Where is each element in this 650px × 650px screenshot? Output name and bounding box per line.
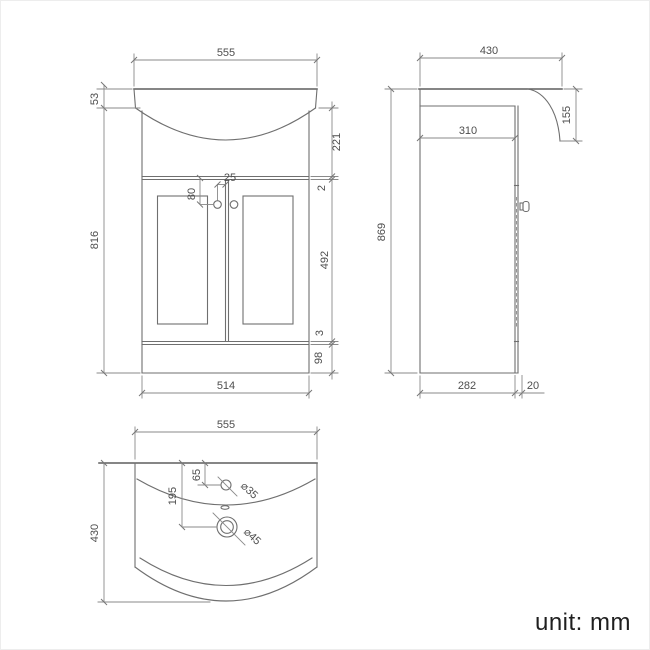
dim-front-plinth-height: 98 (313, 352, 325, 364)
dim-top-basin-width: 555 (217, 419, 235, 431)
top-dimensions: 555 430 65 195 (89, 419, 317, 602)
top-basin-outline (99, 463, 317, 601)
top-holes: ⌀35 ⌀45 (213, 477, 263, 548)
vanity-unit-drawing: 555 53 816 221 2 492 3 (1, 1, 650, 650)
dim-tap-hole-diameter: ⌀35 (238, 480, 260, 502)
technical-drawing-canvas: 555 53 816 221 2 492 3 (0, 0, 650, 650)
dim-front-basin-width: 555 (217, 47, 235, 59)
right-door-panel (243, 196, 293, 324)
overflow-hole (221, 506, 229, 510)
bowl-back-curve (137, 479, 315, 505)
dim-side-overall-height: 869 (376, 223, 388, 241)
side-door-knob (520, 202, 529, 212)
dim-front-upper-panel: 221 (331, 133, 343, 151)
basin-front-rim-curve (140, 558, 312, 586)
unit-label: unit: mm (535, 609, 631, 637)
dim-side-door-thickness: 20 (527, 380, 539, 392)
basin-front-outer-curve (135, 567, 317, 601)
dim-front-door-top-gap: 2 (316, 185, 328, 191)
top-view: ⌀35 ⌀45 555 430 65 195 (89, 419, 317, 602)
dim-side-basin-front-height: 155 (561, 106, 573, 124)
dim-front-lip-height: 53 (89, 93, 101, 105)
dim-front-cabinet-height: 816 (89, 231, 101, 249)
side-basin (419, 89, 562, 141)
dim-side-worktop-depth: 310 (459, 125, 477, 137)
side-view: 430 155 310 869 282 20 (376, 45, 582, 398)
side-dimensions: 430 155 310 869 282 20 (376, 45, 582, 398)
basin-lip-curve (136, 108, 316, 140)
front-dimensions: 555 53 816 221 2 492 3 (89, 47, 343, 398)
dim-top-tap-offset: 65 (191, 469, 203, 481)
dim-front-handle-drop: 80 (186, 188, 198, 200)
left-door-panel (158, 196, 208, 324)
dim-side-cabinet-depth: 282 (458, 380, 476, 392)
front-basin (134, 89, 317, 140)
dim-front-handle-inset: 25 (224, 172, 236, 184)
right-door-handle (230, 201, 238, 209)
dim-top-waste-offset: 195 (167, 487, 179, 505)
dim-front-cabinet-width: 514 (217, 380, 235, 392)
dim-side-overall-depth: 430 (480, 45, 498, 57)
dim-front-door-height: 492 (319, 251, 331, 269)
basin-profile-curve (528, 89, 560, 141)
dim-top-basin-depth: 430 (89, 524, 101, 542)
dim-front-door-bottom-gap: 3 (314, 330, 326, 336)
front-cabinet (142, 111, 309, 373)
front-view: 555 53 816 221 2 492 3 (89, 47, 343, 398)
left-door-handle (214, 201, 222, 209)
